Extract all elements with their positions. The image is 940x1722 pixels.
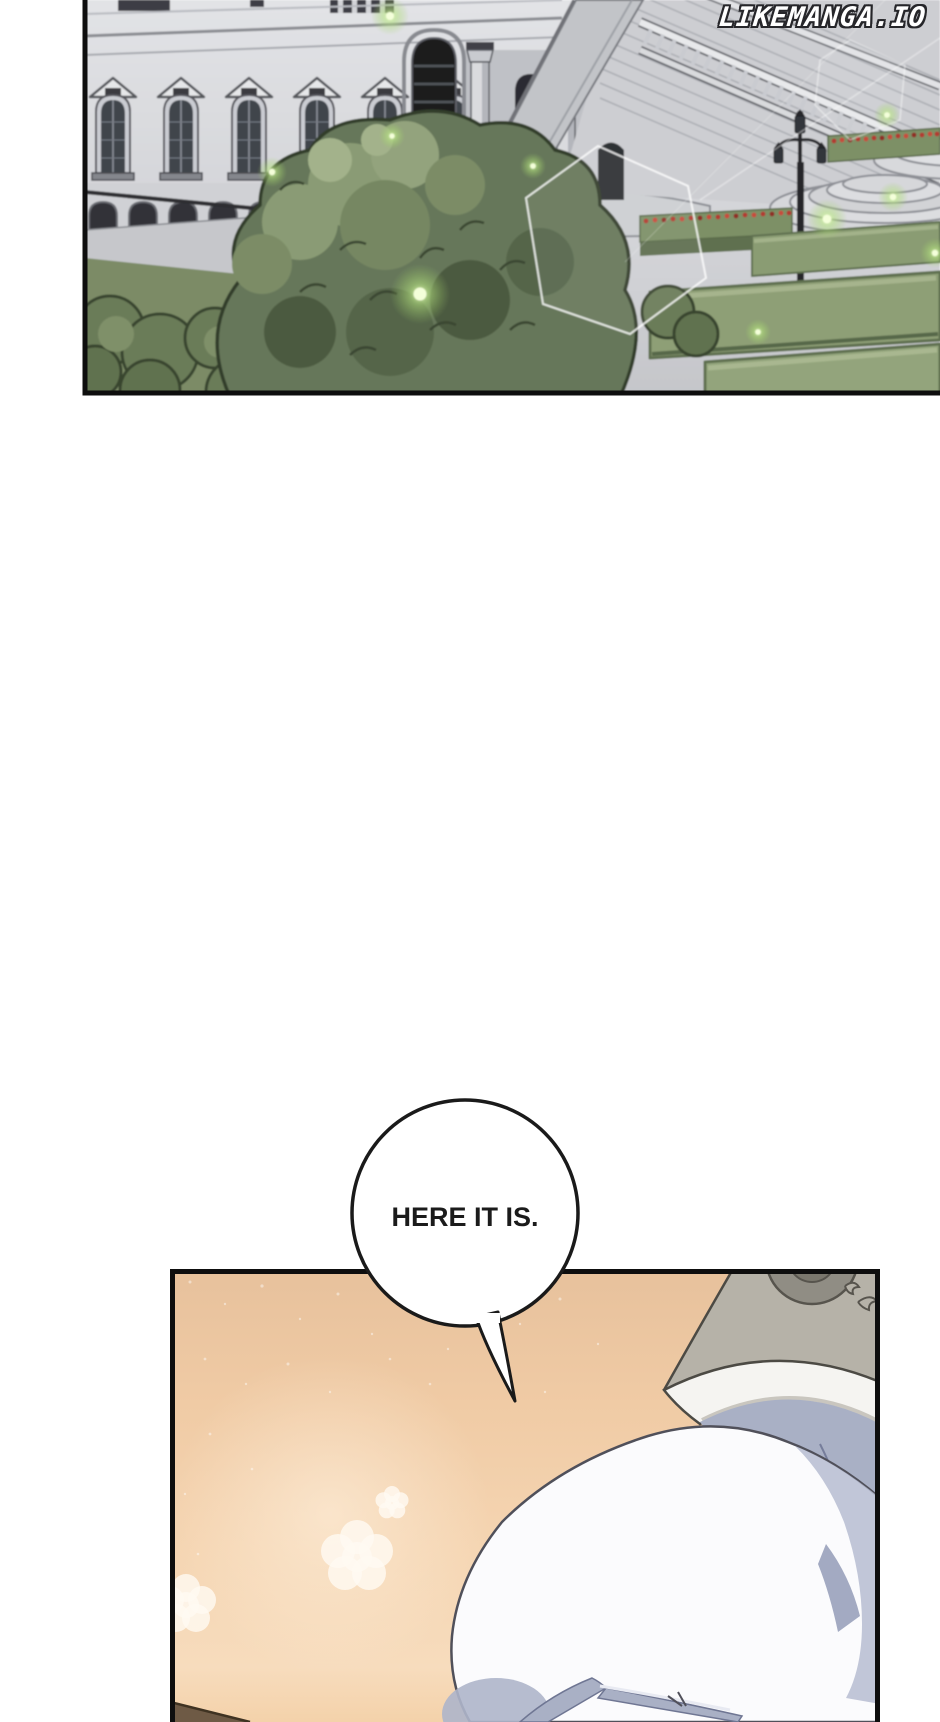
speech-bubble-tail bbox=[476, 1312, 515, 1401]
manga-page: LIKEMANGA.IO bbox=[0, 0, 940, 1722]
tail-joint-mask bbox=[454, 1313, 500, 1323]
small-bush bbox=[674, 312, 718, 356]
speech-bubble bbox=[330, 1085, 610, 1415]
speech-bubble-text: HERE IT IS. bbox=[330, 1203, 600, 1231]
site-watermark: LIKEMANGA.IO bbox=[717, 2, 927, 33]
palace-garden-panel bbox=[0, 0, 940, 397]
